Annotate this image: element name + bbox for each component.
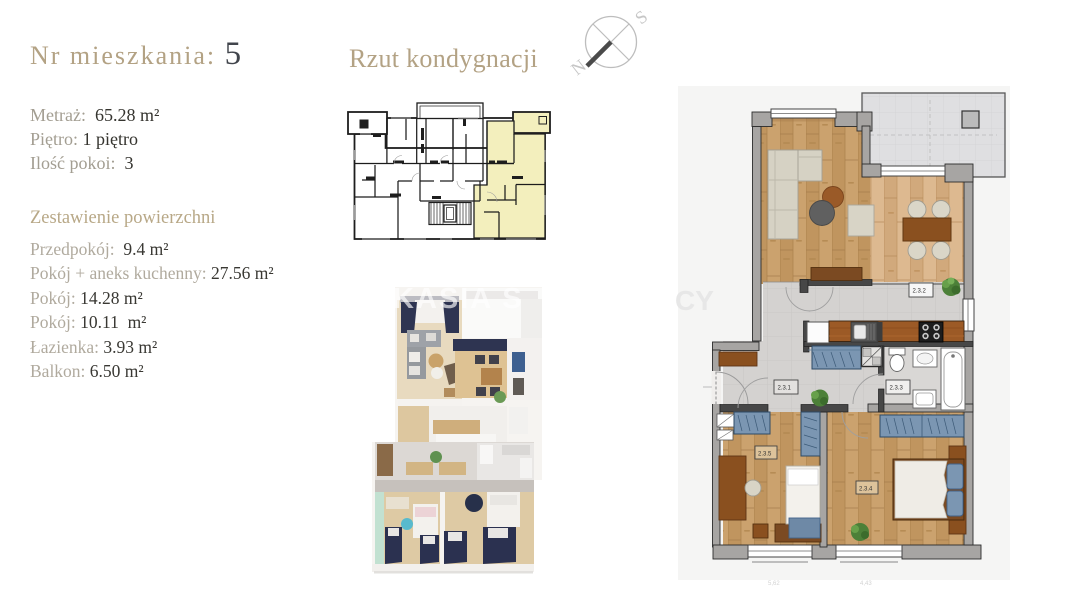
svg-text:2.3.2: 2.3.2 [913,289,927,295]
svg-text:2.3.4: 2.3.4 [859,487,873,493]
svg-text:2.3.3: 2.3.3 [890,386,904,392]
svg-text:S: S [631,6,651,28]
svg-text:N: N [567,55,590,79]
svg-text:4,43: 4,43 [860,581,872,586]
svg-text:2.3.1: 2.3.1 [778,386,792,392]
svg-text:5,62: 5,62 [768,581,780,586]
svg-text:2.3.5: 2.3.5 [758,452,772,458]
